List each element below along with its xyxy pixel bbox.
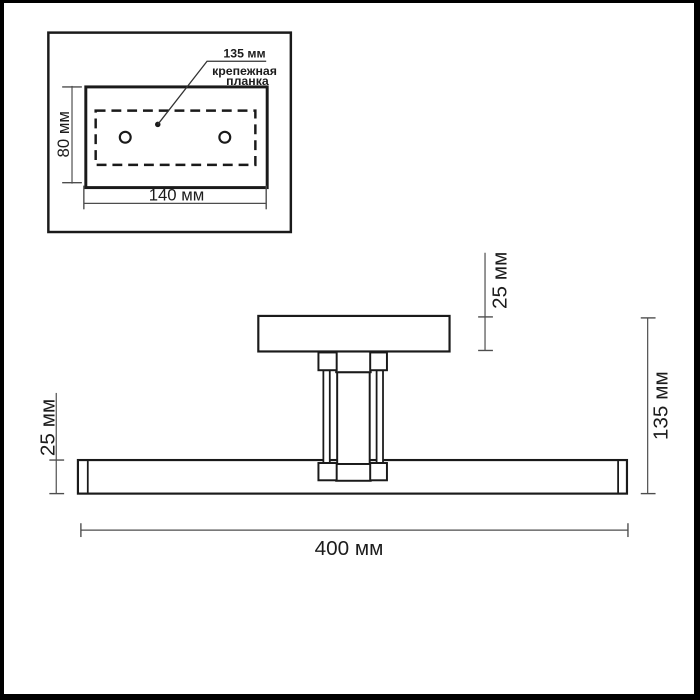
plate-height-label: 80 мм (54, 111, 73, 157)
column-bottom-flange-left (318, 463, 336, 480)
mounting-plate (86, 87, 267, 188)
bar-height-dimension: 25 мм (36, 393, 64, 494)
mounting-base (258, 316, 449, 352)
base-height-label: 25 мм (489, 252, 512, 309)
total-height-label: 135 мм (649, 371, 672, 440)
column-bottom-flange-right (370, 463, 387, 480)
base-height-dimension: 25 мм (478, 252, 512, 351)
column-top-flange-left (318, 352, 336, 370)
screw-hole-right (219, 132, 230, 143)
screw-hole-left (120, 132, 131, 143)
column-top-flange-right (370, 352, 387, 370)
technical-drawing: 135 мм крепежная планка 80 мм 140 мм (4, 3, 694, 694)
mounting-plate-inset: 135 мм крепежная планка 80 мм 140 мм (48, 33, 290, 232)
plate-width-label: 140 мм (149, 185, 205, 204)
bar-length-label: 400 мм (315, 537, 384, 560)
bar-height-label: 25 мм (36, 399, 59, 456)
column-bottom-block (336, 464, 371, 481)
plate-name-label-line2: планка (226, 74, 269, 88)
column-top-block (336, 351, 371, 372)
drawing-canvas: 135 мм крепежная планка 80 мм 140 мм (0, 0, 700, 700)
column-post-right (377, 370, 383, 463)
bar-length-dimension: 400 мм (81, 523, 628, 560)
column-center (337, 372, 370, 464)
hole-spacing-label: 135 мм (223, 46, 265, 60)
column-post-left (323, 370, 329, 463)
fixture-side-view (78, 316, 627, 494)
total-height-dimension: 135 мм (641, 318, 673, 494)
